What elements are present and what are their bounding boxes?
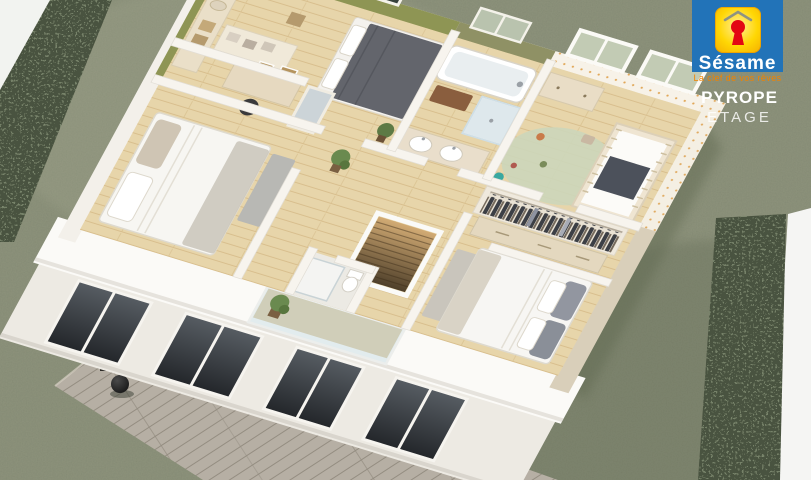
floorplan-render: MAISONS Sésame La clef de vos rêves PYRO… xyxy=(0,0,811,480)
keyhole-icon xyxy=(715,7,761,53)
plan-name: PYROPE xyxy=(692,88,787,108)
brand-name: Sésame xyxy=(692,54,783,74)
brand-top-text: MAISONS xyxy=(692,0,783,5)
plan-level: ETAGE xyxy=(692,109,787,126)
brand-tagline: La clef de vos rêves xyxy=(677,72,798,84)
brand-logo-panel: MAISONS Sésame xyxy=(692,0,783,72)
brand-logo-square xyxy=(715,7,761,53)
roof-icon xyxy=(725,12,751,20)
